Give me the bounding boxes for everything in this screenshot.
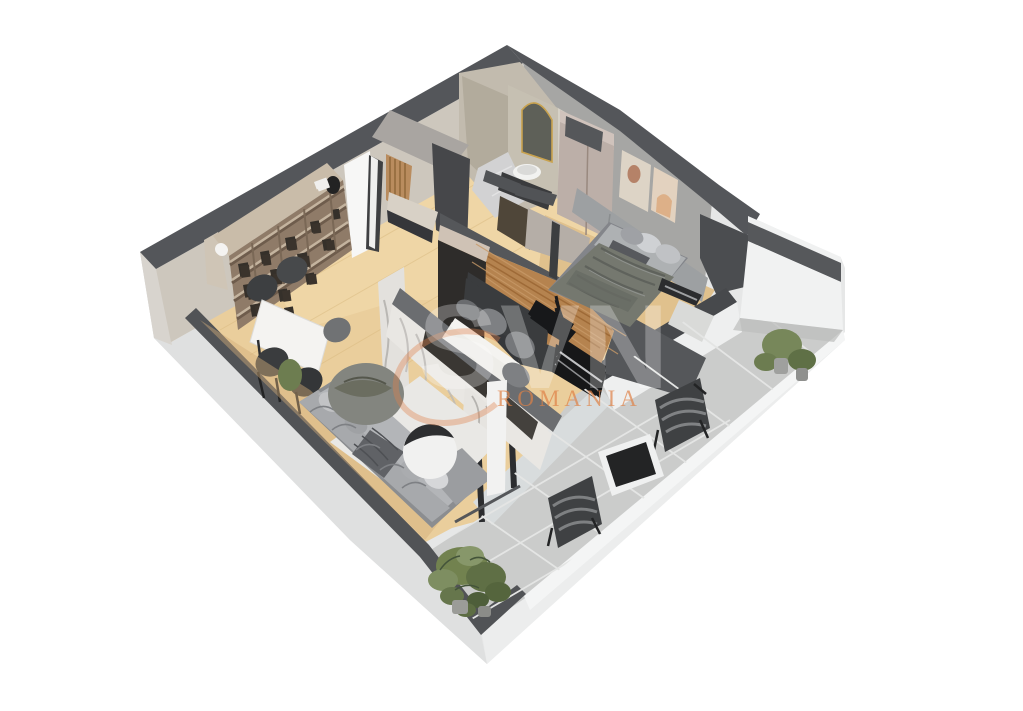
svg-text:ROMANIA: ROMANIA	[497, 386, 642, 411]
